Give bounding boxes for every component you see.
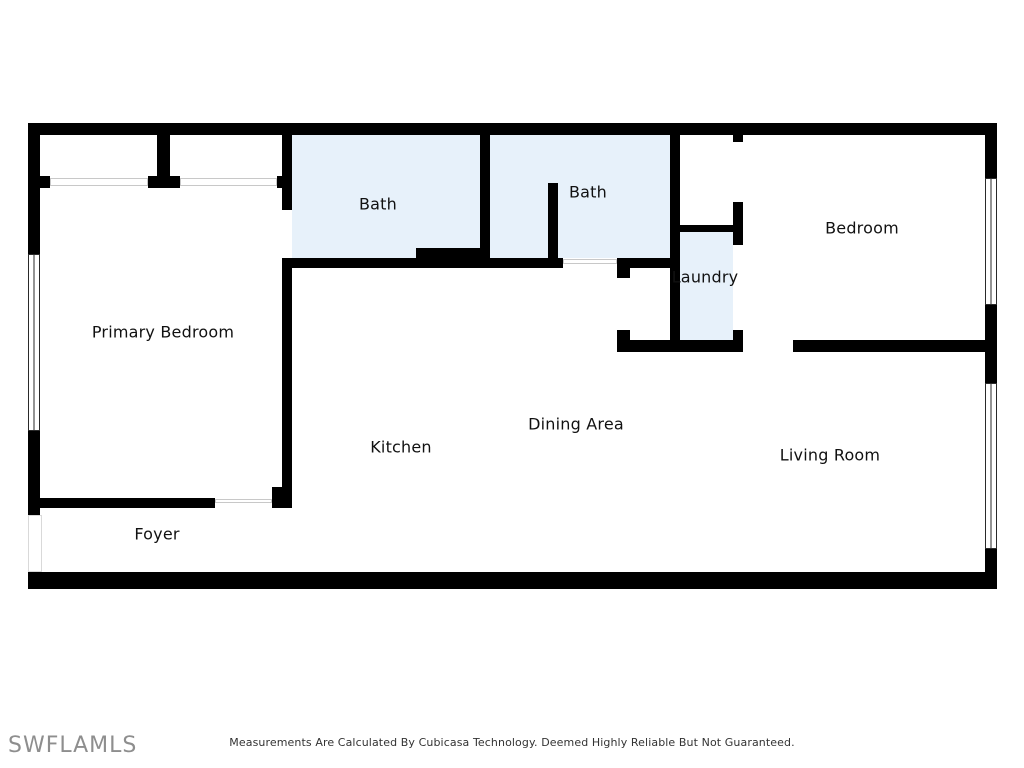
wall-closet-stub-right	[277, 176, 292, 188]
window-right-bottom	[986, 384, 997, 549]
wall-closet-stub-left	[40, 176, 50, 188]
wall-outer-bottom	[28, 572, 997, 589]
measurement-disclaimer: Measurements Are Calculated By Cubicasa …	[0, 736, 1024, 749]
closet-sliding-door-left	[51, 179, 148, 186]
room-label-kitchen: Kitchen	[370, 438, 432, 457]
wall-bedroom-bottom-right	[793, 340, 985, 352]
room-label-foyer: Foyer	[134, 525, 179, 544]
room-label-laundry: Laundry	[672, 268, 739, 287]
wall-laundry-right-middle	[733, 202, 743, 245]
wall-primary-door-stub	[272, 487, 292, 508]
room-label-bath-1: Bath	[359, 195, 397, 214]
room-label-primary-bedroom: Primary Bedroom	[92, 323, 234, 342]
window-left	[29, 255, 40, 431]
wall-laundry-left	[670, 135, 680, 352]
wall-outer-right-middle	[985, 305, 997, 383]
floor-plan-page: Primary Bedroom Bath Bath Laundry Bedroo…	[0, 0, 1024, 768]
wall-bath2-stub	[548, 183, 558, 268]
window-right-top	[986, 179, 997, 305]
wall-bedroom-bottom-left	[617, 340, 743, 352]
wall-primary-bath-upper	[282, 135, 292, 210]
wall-outer-left-lower	[28, 431, 40, 515]
floor-plan-drawing	[0, 0, 1024, 768]
wall-primary-kitchen	[282, 260, 292, 508]
room-label-bath-2: Bath	[569, 183, 607, 202]
wall-outer-left-upper	[28, 135, 40, 254]
room-label-dining-area: Dining Area	[528, 415, 624, 434]
wall-closet-stub-middle	[148, 176, 180, 188]
wall-wc-left-upper	[617, 258, 630, 278]
wall-bath-bottom-chunk	[416, 248, 490, 268]
wall-outer-right-upper	[985, 135, 997, 178]
entry-door-opening	[29, 516, 42, 572]
primary-bedroom-door-threshold	[216, 500, 272, 503]
wall-closet-divider	[157, 135, 170, 176]
room-label-bedroom: Bedroom	[825, 219, 899, 238]
wall-laundry-right-upper	[733, 135, 743, 142]
bath2-door-threshold	[564, 260, 617, 264]
closet-sliding-door-right	[181, 179, 277, 186]
wall-primary-bottom	[40, 498, 215, 508]
wall-outer-top	[28, 123, 997, 135]
wall-laundry-top	[670, 225, 733, 232]
room-label-living-room: Living Room	[780, 446, 880, 465]
